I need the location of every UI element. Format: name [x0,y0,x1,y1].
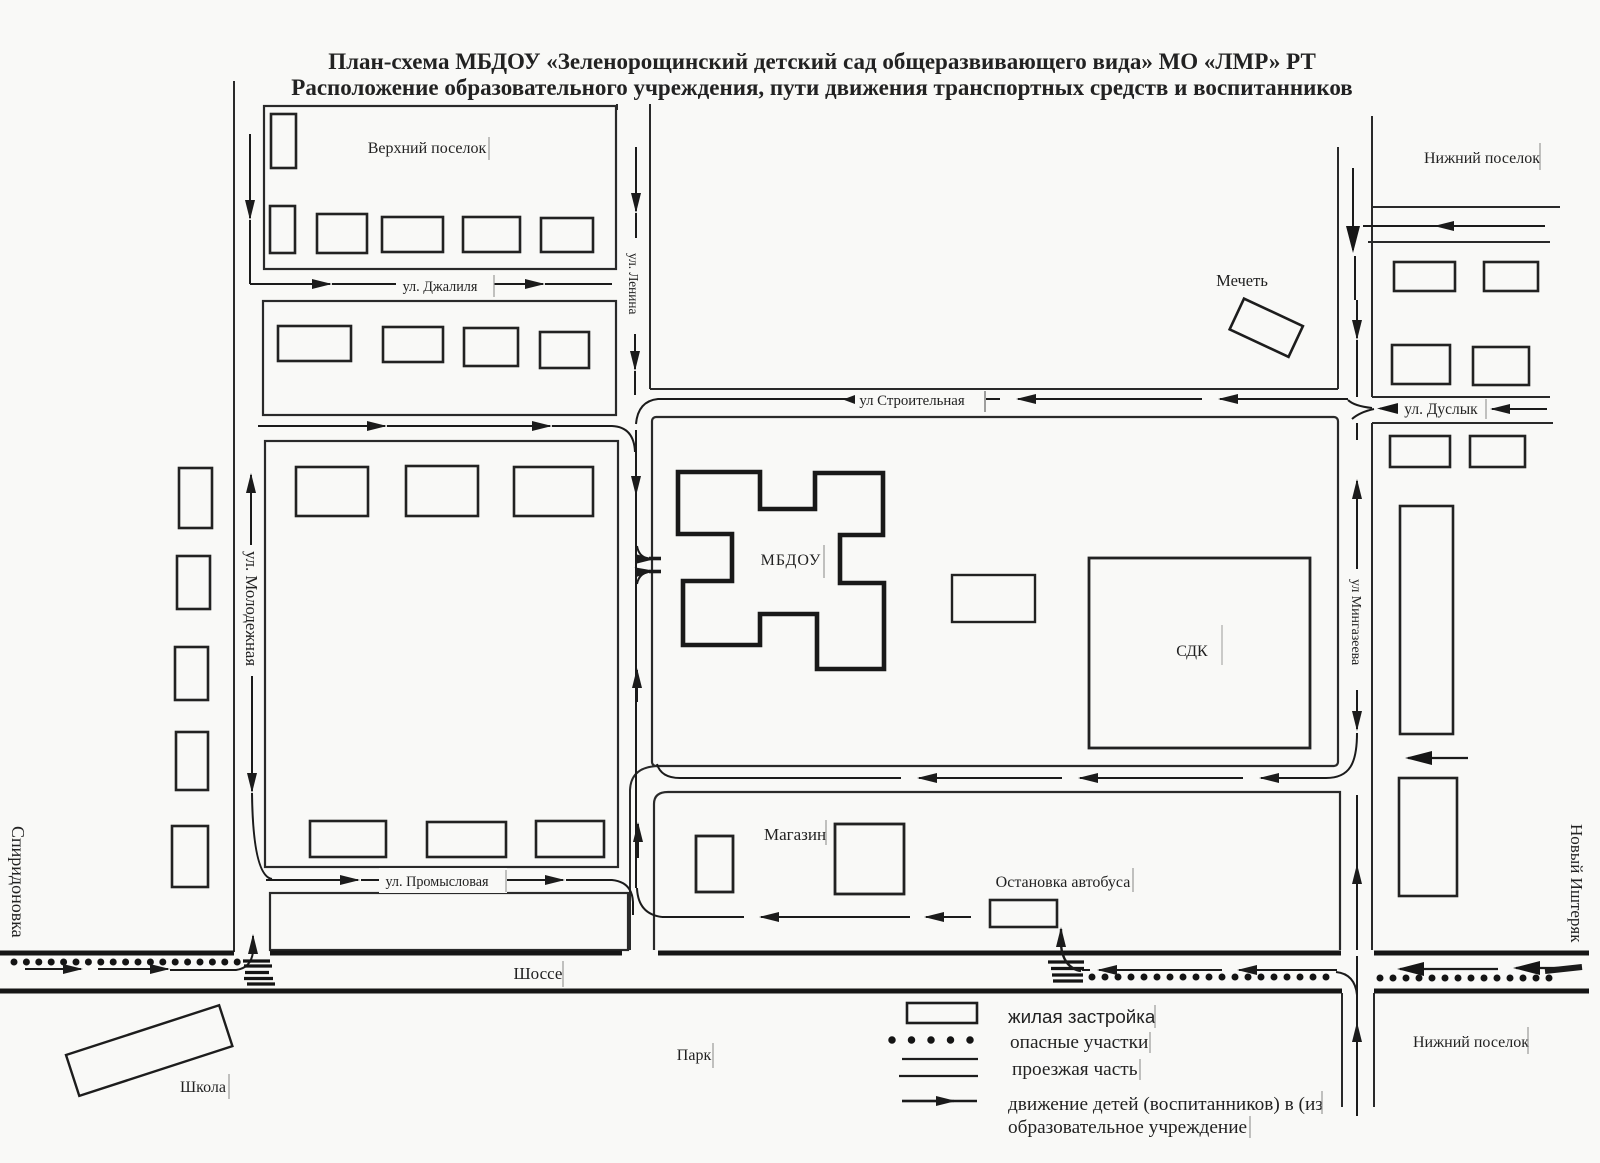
svg-text:ул. Джалиля: ул. Джалиля [403,279,478,295]
svg-text:СДК: СДК [1176,643,1208,660]
svg-text:проезжая часть: проезжая часть [1012,1059,1138,1080]
svg-text:жилая застройка: жилая застройка [1008,1006,1156,1027]
svg-text:План-схема МБДОУ «Зеленорощинс: План-схема МБДОУ «Зеленорощинский детски… [328,49,1316,74]
svg-text:Школа: Школа [180,1079,226,1096]
svg-text:ул Строительная: ул Строительная [859,393,965,409]
svg-text:ул. Дуслык: ул. Дуслык [1404,401,1478,418]
svg-text:движение детей (воспитанников): движение детей (воспитанников) в (из [1008,1094,1323,1115]
svg-text:МБДОУ: МБДОУ [761,552,822,569]
svg-text:Магазин: Магазин [764,825,826,844]
svg-text:ул. Молодежная: ул. Молодежная [242,551,261,666]
svg-text:Новый Иштеряк: Новый Иштеряк [1567,824,1586,943]
svg-text:Шоссе: Шоссе [514,964,563,983]
svg-text:ул. Промысловая: ул. Промысловая [385,874,489,890]
svg-text:ул. Ленина: ул. Ленина [626,253,641,315]
svg-text:Остановка автобуса: Остановка автобуса [996,874,1131,891]
svg-text:Парк: Парк [677,1047,712,1064]
svg-text:опасные участки: опасные участки [1010,1032,1148,1053]
svg-text:ул Мингазеева: ул Мингазеева [1348,579,1363,665]
svg-text:Спиридоновка: Спиридоновка [8,826,28,938]
svg-text:Мечеть: Мечеть [1216,271,1268,290]
svg-text:Нижний поселок: Нижний поселок [1424,150,1540,167]
svg-text:Нижний поселок: Нижний поселок [1413,1034,1529,1051]
svg-text:Верхний поселок: Верхний поселок [368,140,487,157]
svg-text:образовательное учреждение: образовательное учреждение [1008,1117,1247,1138]
svg-text:Расположение образовательного: Расположение образовательного учреждения… [291,75,1352,100]
